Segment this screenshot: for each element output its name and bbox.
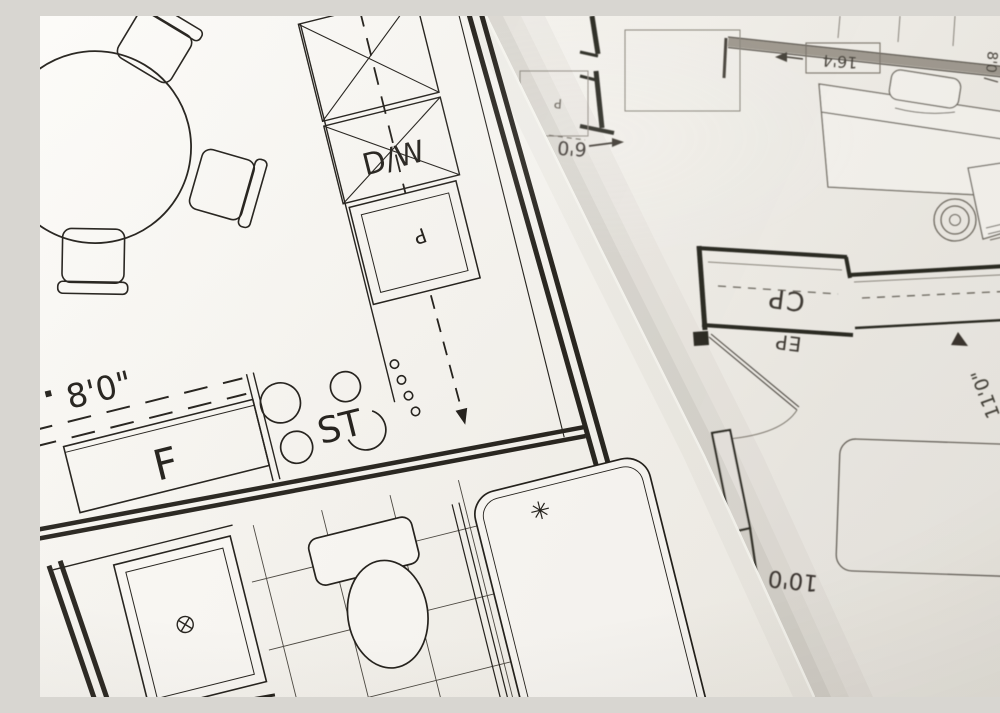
closet-ep-label: EP — [773, 329, 802, 356]
floor-plan-scene: 16'4 8'0 — [40, 16, 1000, 697]
bed-side-dim-label: 8'0 — [982, 51, 1000, 74]
headboard-dim-label: 16'4 — [822, 51, 858, 72]
blueprint-photo: 16'4 8'0 — [40, 16, 1000, 697]
closet-cp-label: CP — [765, 282, 806, 316]
